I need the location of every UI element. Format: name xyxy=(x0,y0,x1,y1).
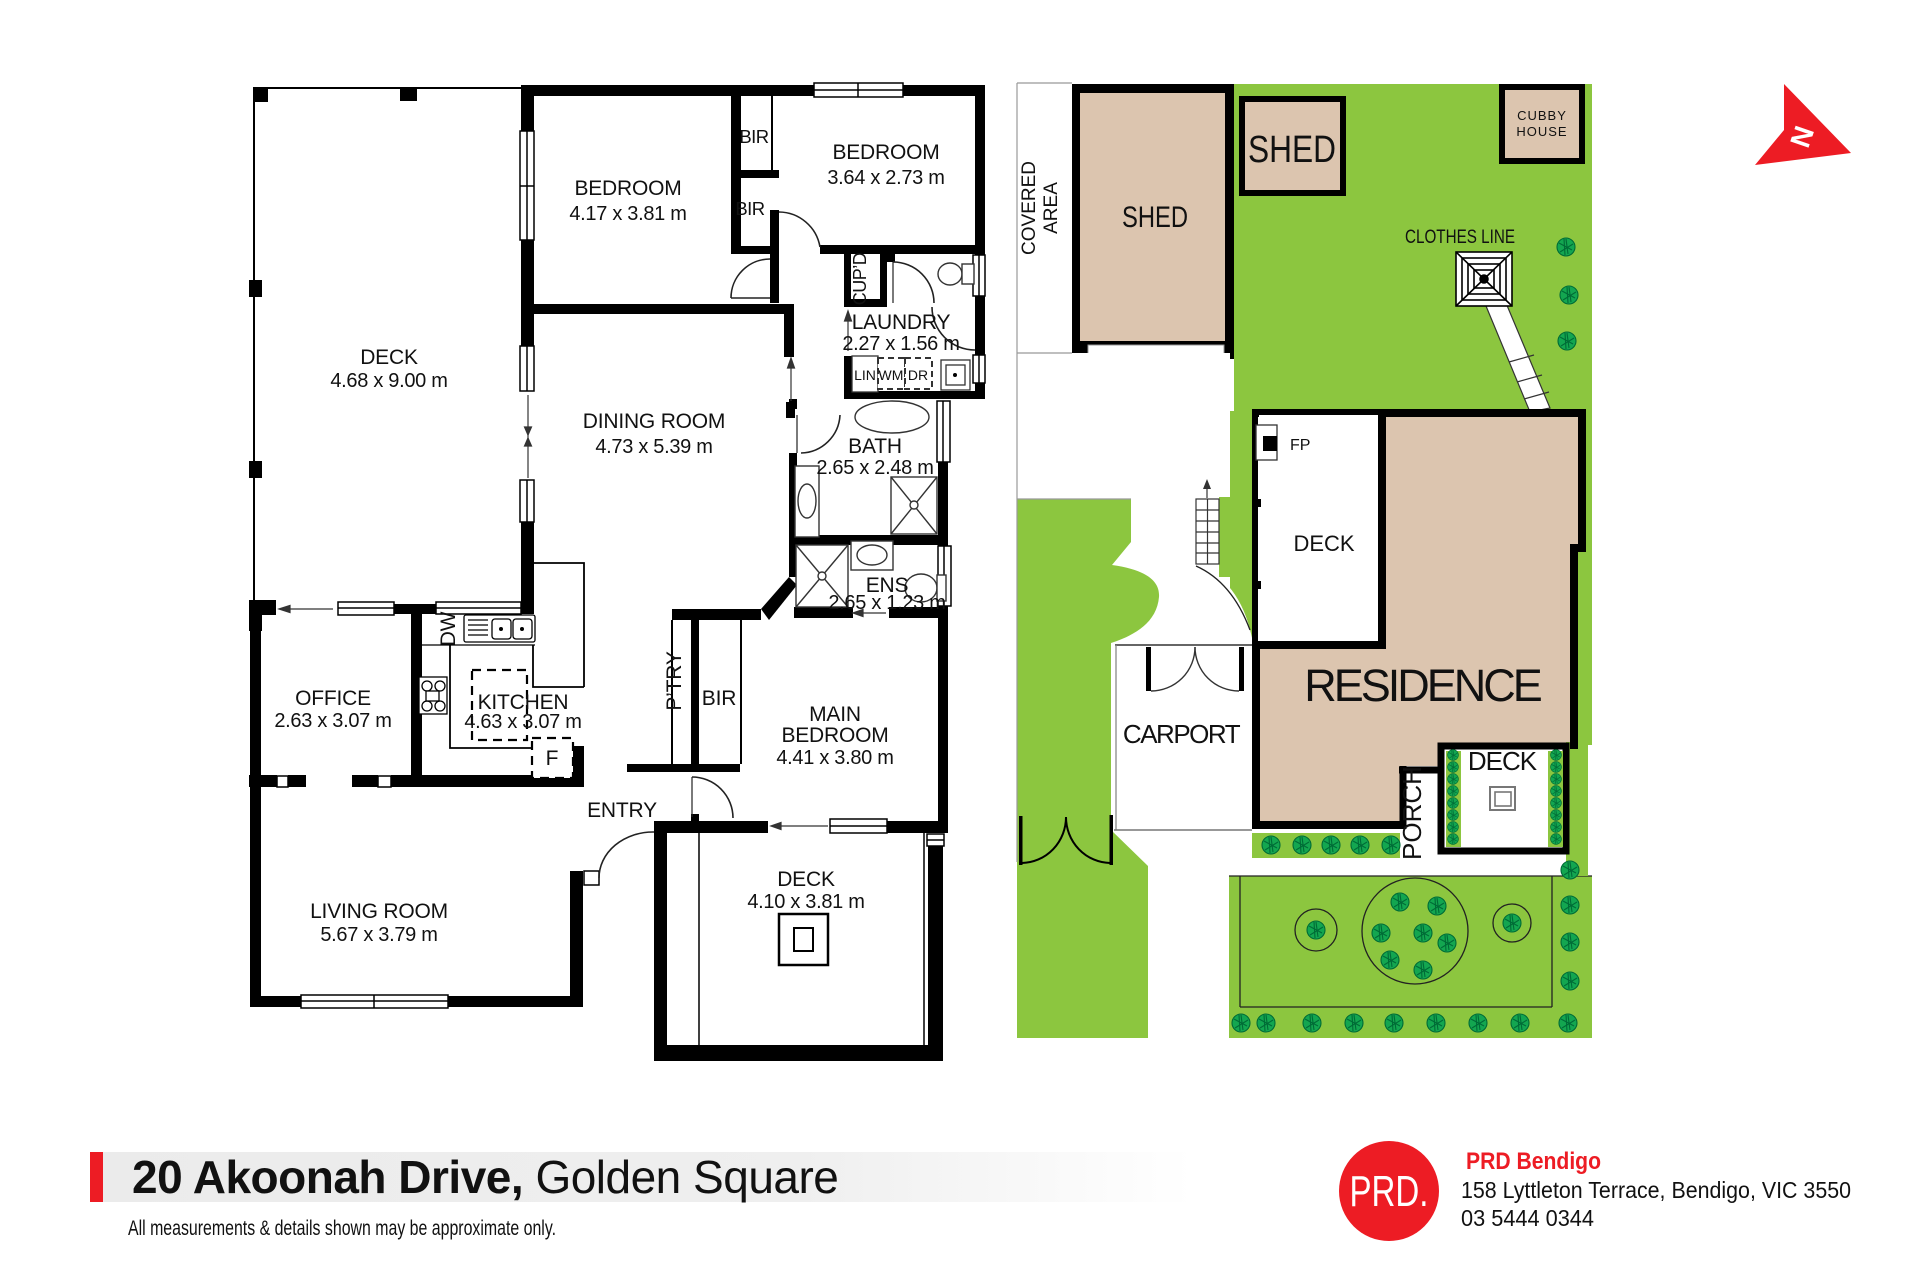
svg-text:PORCH: PORCH xyxy=(1397,766,1427,860)
svg-text:DECK: DECK xyxy=(1468,746,1538,776)
svg-text:BATH: BATH xyxy=(848,435,902,458)
svg-text:MAIN: MAIN xyxy=(809,703,861,726)
svg-text:4.10 x 3.81 m: 4.10 x 3.81 m xyxy=(747,891,864,913)
svg-text:4.68 x 9.00 m: 4.68 x 9.00 m xyxy=(330,370,447,392)
svg-text:CUBBY: CUBBY xyxy=(1517,108,1567,123)
svg-text:DECK: DECK xyxy=(1293,531,1354,556)
svg-text:4.73 x 5.39 m: 4.73 x 5.39 m xyxy=(595,436,712,458)
svg-text:DECK: DECK xyxy=(360,346,418,369)
svg-text:LIVING ROOM: LIVING ROOM xyxy=(310,900,448,923)
svg-text:BIR: BIR xyxy=(739,126,768,147)
svg-text:All measurements & details sho: All measurements & details shown may be … xyxy=(128,1217,556,1240)
svg-text:03 5444 0344: 03 5444 0344 xyxy=(1461,1205,1594,1231)
svg-text:2.27 x 1.56 m: 2.27 x 1.56 m xyxy=(842,333,959,355)
svg-text:BEDROOM: BEDROOM xyxy=(781,724,888,747)
svg-text:SHED: SHED xyxy=(1122,201,1188,234)
svg-text:BEDROOM: BEDROOM xyxy=(832,141,939,164)
svg-text:PRD.: PRD. xyxy=(1350,1167,1429,1216)
svg-text:158 Lyttleton Terrace, Bendigo: 158 Lyttleton Terrace, Bendigo, VIC 3550 xyxy=(1461,1177,1851,1203)
svg-text:COVERED: COVERED xyxy=(1019,161,1040,255)
svg-text:P’TRY: P’TRY xyxy=(663,651,686,710)
svg-text:DINING ROOM: DINING ROOM xyxy=(583,410,725,433)
svg-text:WM: WM xyxy=(879,367,904,383)
svg-text:DW: DW xyxy=(437,611,460,646)
svg-text:4.17 x 3.81 m: 4.17 x 3.81 m xyxy=(569,203,686,225)
svg-text:AREA: AREA xyxy=(1041,182,1062,234)
svg-text:DR: DR xyxy=(908,367,928,383)
svg-text:FP: FP xyxy=(1290,437,1310,454)
svg-text:F: F xyxy=(546,747,559,770)
svg-text:LIN: LIN xyxy=(854,367,876,383)
svg-text:BIR: BIR xyxy=(735,198,764,219)
svg-text:4.41 x 3.80 m: 4.41 x 3.80 m xyxy=(776,747,893,769)
svg-text:LAUNDRY: LAUNDRY xyxy=(852,311,951,334)
svg-text:20 Akoonah Drive, Golden Squar: 20 Akoonah Drive, Golden Square xyxy=(132,1151,838,1203)
svg-text:HOUSE: HOUSE xyxy=(1516,124,1567,139)
svg-text:SHED: SHED xyxy=(1248,129,1336,171)
svg-text:RESIDENCE: RESIDENCE xyxy=(1304,660,1542,711)
svg-text:DECK: DECK xyxy=(777,868,835,891)
svg-text:3.64 x 2.73 m: 3.64 x 2.73 m xyxy=(827,167,944,189)
svg-text:CUP’D: CUP’D xyxy=(850,252,870,305)
svg-text:BEDROOM: BEDROOM xyxy=(574,177,681,200)
svg-text:2.65 x 1.23 m: 2.65 x 1.23 m xyxy=(828,592,945,614)
svg-text:CLOTHES LINE: CLOTHES LINE xyxy=(1405,227,1515,248)
svg-text:BIR: BIR xyxy=(702,687,736,710)
svg-text:CARPORT: CARPORT xyxy=(1123,719,1241,749)
svg-text:2.65 x 2.48 m: 2.65 x 2.48 m xyxy=(816,457,933,479)
svg-text:4.63 x 3.07 m: 4.63 x 3.07 m xyxy=(464,711,581,733)
svg-text:PRD Bendigo: PRD Bendigo xyxy=(1466,1148,1601,1175)
svg-text:ENTRY: ENTRY xyxy=(587,799,657,822)
svg-text:5.67 x 3.79 m: 5.67 x 3.79 m xyxy=(320,924,437,946)
svg-text:2.63 x 3.07 m: 2.63 x 3.07 m xyxy=(274,710,391,732)
svg-text:OFFICE: OFFICE xyxy=(295,687,371,710)
